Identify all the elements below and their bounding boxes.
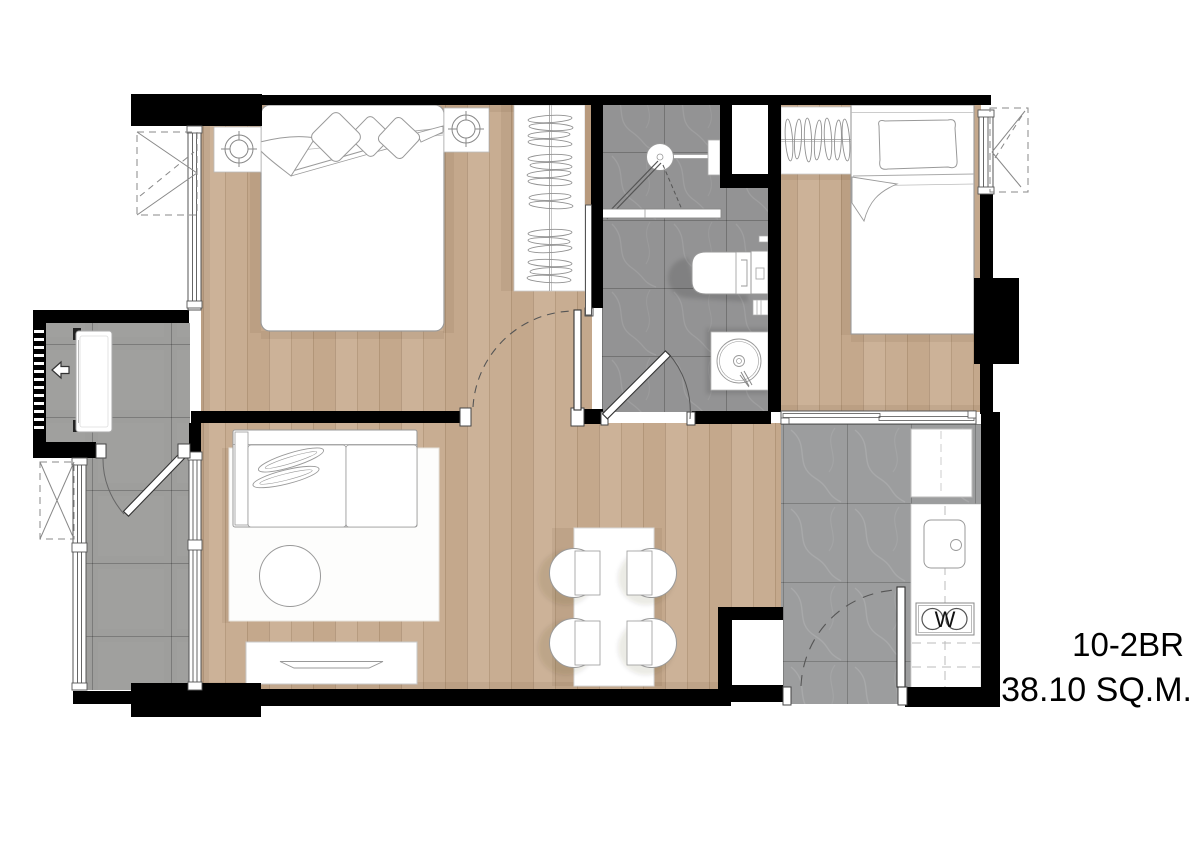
svg-text:38.10 SQ.M.: 38.10 SQ.M.	[1001, 671, 1192, 709]
svg-text:10-2BR: 10-2BR	[1072, 626, 1184, 663]
svg-text:W: W	[935, 607, 956, 632]
